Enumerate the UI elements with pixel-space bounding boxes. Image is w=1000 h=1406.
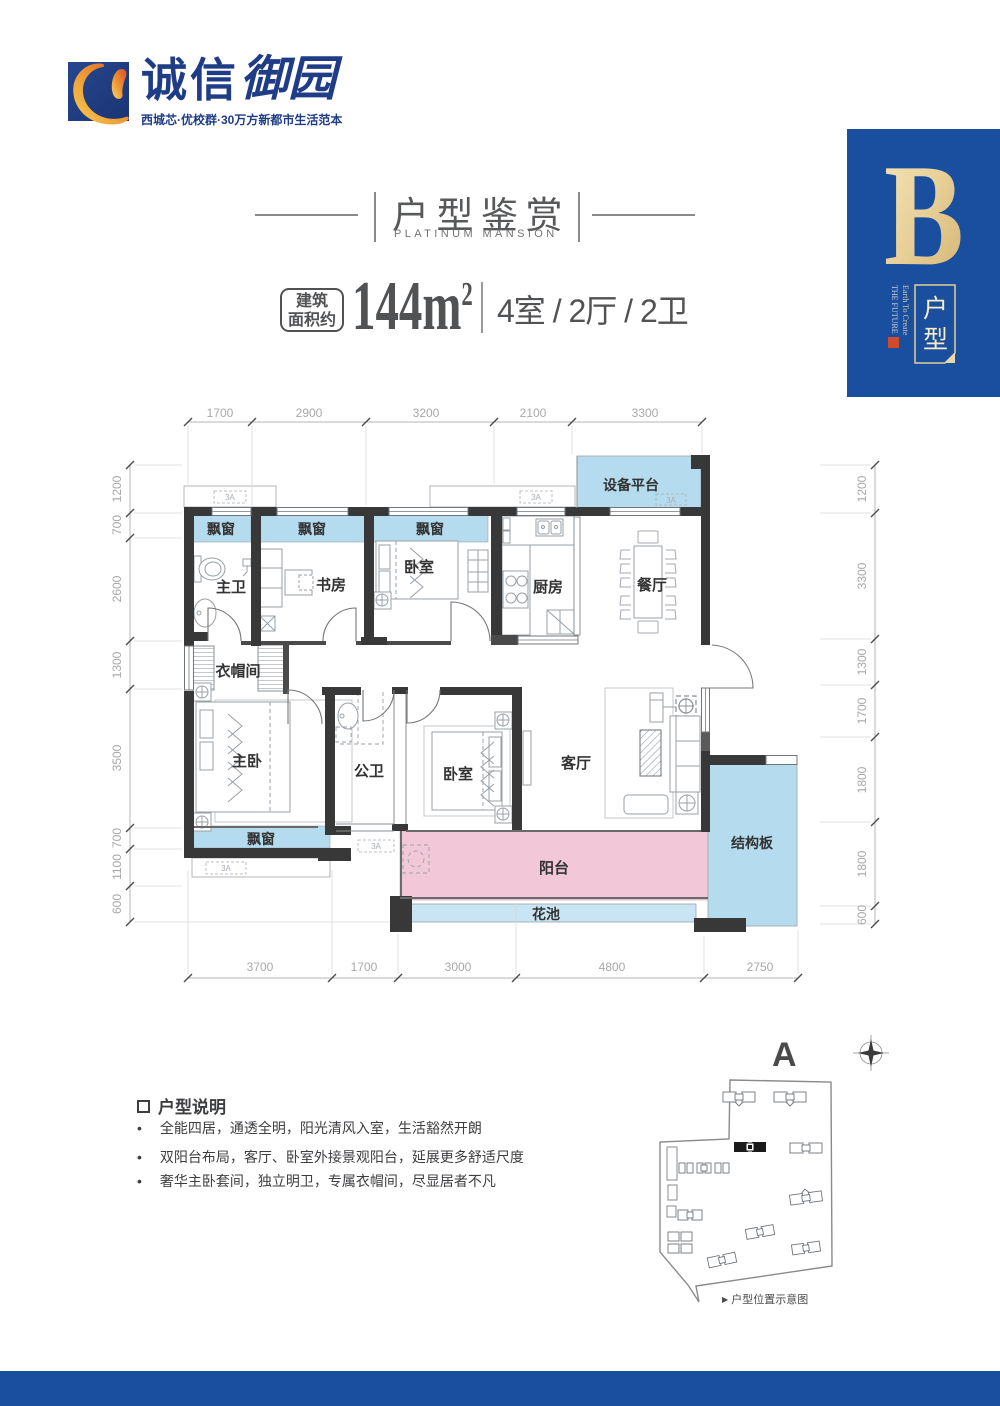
- svg-text:1100: 1100: [110, 854, 124, 880]
- svg-text:2900: 2900: [296, 406, 323, 420]
- svg-text:3700: 3700: [247, 960, 274, 974]
- svg-text:3A: 3A: [531, 493, 541, 502]
- svg-text:飘窗: 飘窗: [298, 521, 326, 537]
- svg-text:3500: 3500: [110, 744, 124, 771]
- svg-text:书房: 书房: [316, 576, 346, 594]
- svg-text:600: 600: [110, 894, 124, 914]
- svg-text:2750: 2750: [747, 960, 774, 974]
- svg-text:1800: 1800: [855, 850, 869, 877]
- svg-text:结构板: 结构板: [731, 835, 774, 851]
- svg-text:1200: 1200: [855, 475, 869, 502]
- svg-text:3300: 3300: [855, 562, 869, 589]
- svg-text:卧室: 卧室: [443, 765, 473, 783]
- svg-text:3300: 3300: [632, 406, 659, 420]
- svg-text:客厅: 客厅: [560, 754, 591, 772]
- svg-text:飘窗: 飘窗: [416, 521, 444, 537]
- svg-text:1700: 1700: [207, 406, 234, 420]
- svg-text:3A: 3A: [371, 842, 381, 851]
- svg-text:3000: 3000: [445, 960, 472, 974]
- svg-text:2100: 2100: [520, 406, 547, 420]
- svg-text:3A: 3A: [225, 493, 235, 502]
- svg-text:公卫: 公卫: [354, 763, 384, 780]
- svg-text:700: 700: [110, 828, 124, 848]
- svg-text:700: 700: [110, 515, 124, 535]
- svg-text:1700: 1700: [855, 697, 869, 724]
- svg-text:4800: 4800: [599, 960, 626, 974]
- svg-text:主卫: 主卫: [216, 578, 246, 596]
- svg-text:餐厅: 餐厅: [637, 576, 667, 594]
- svg-text:卧室: 卧室: [404, 558, 434, 576]
- svg-text:花池: 花池: [532, 906, 560, 922]
- svg-text:衣帽间: 衣帽间: [215, 662, 260, 680]
- svg-text:1700: 1700: [351, 960, 378, 974]
- svg-text:600: 600: [855, 905, 869, 925]
- svg-text:2600: 2600: [110, 575, 124, 602]
- svg-text:主卧: 主卧: [232, 752, 262, 770]
- svg-text:阳台: 阳台: [539, 859, 569, 877]
- svg-text:3A: 3A: [221, 864, 231, 873]
- svg-text:厨房: 厨房: [533, 578, 563, 596]
- svg-text:飘窗: 飘窗: [247, 831, 275, 847]
- svg-text:1800: 1800: [855, 766, 869, 793]
- svg-text:飘窗: 飘窗: [207, 521, 235, 537]
- svg-text:1300: 1300: [110, 651, 124, 678]
- svg-text:1200: 1200: [110, 475, 124, 502]
- svg-text:3200: 3200: [413, 406, 440, 420]
- svg-text:设备平台: 设备平台: [603, 477, 659, 493]
- svg-text:1300: 1300: [855, 648, 869, 675]
- svg-text:3A: 3A: [666, 496, 676, 505]
